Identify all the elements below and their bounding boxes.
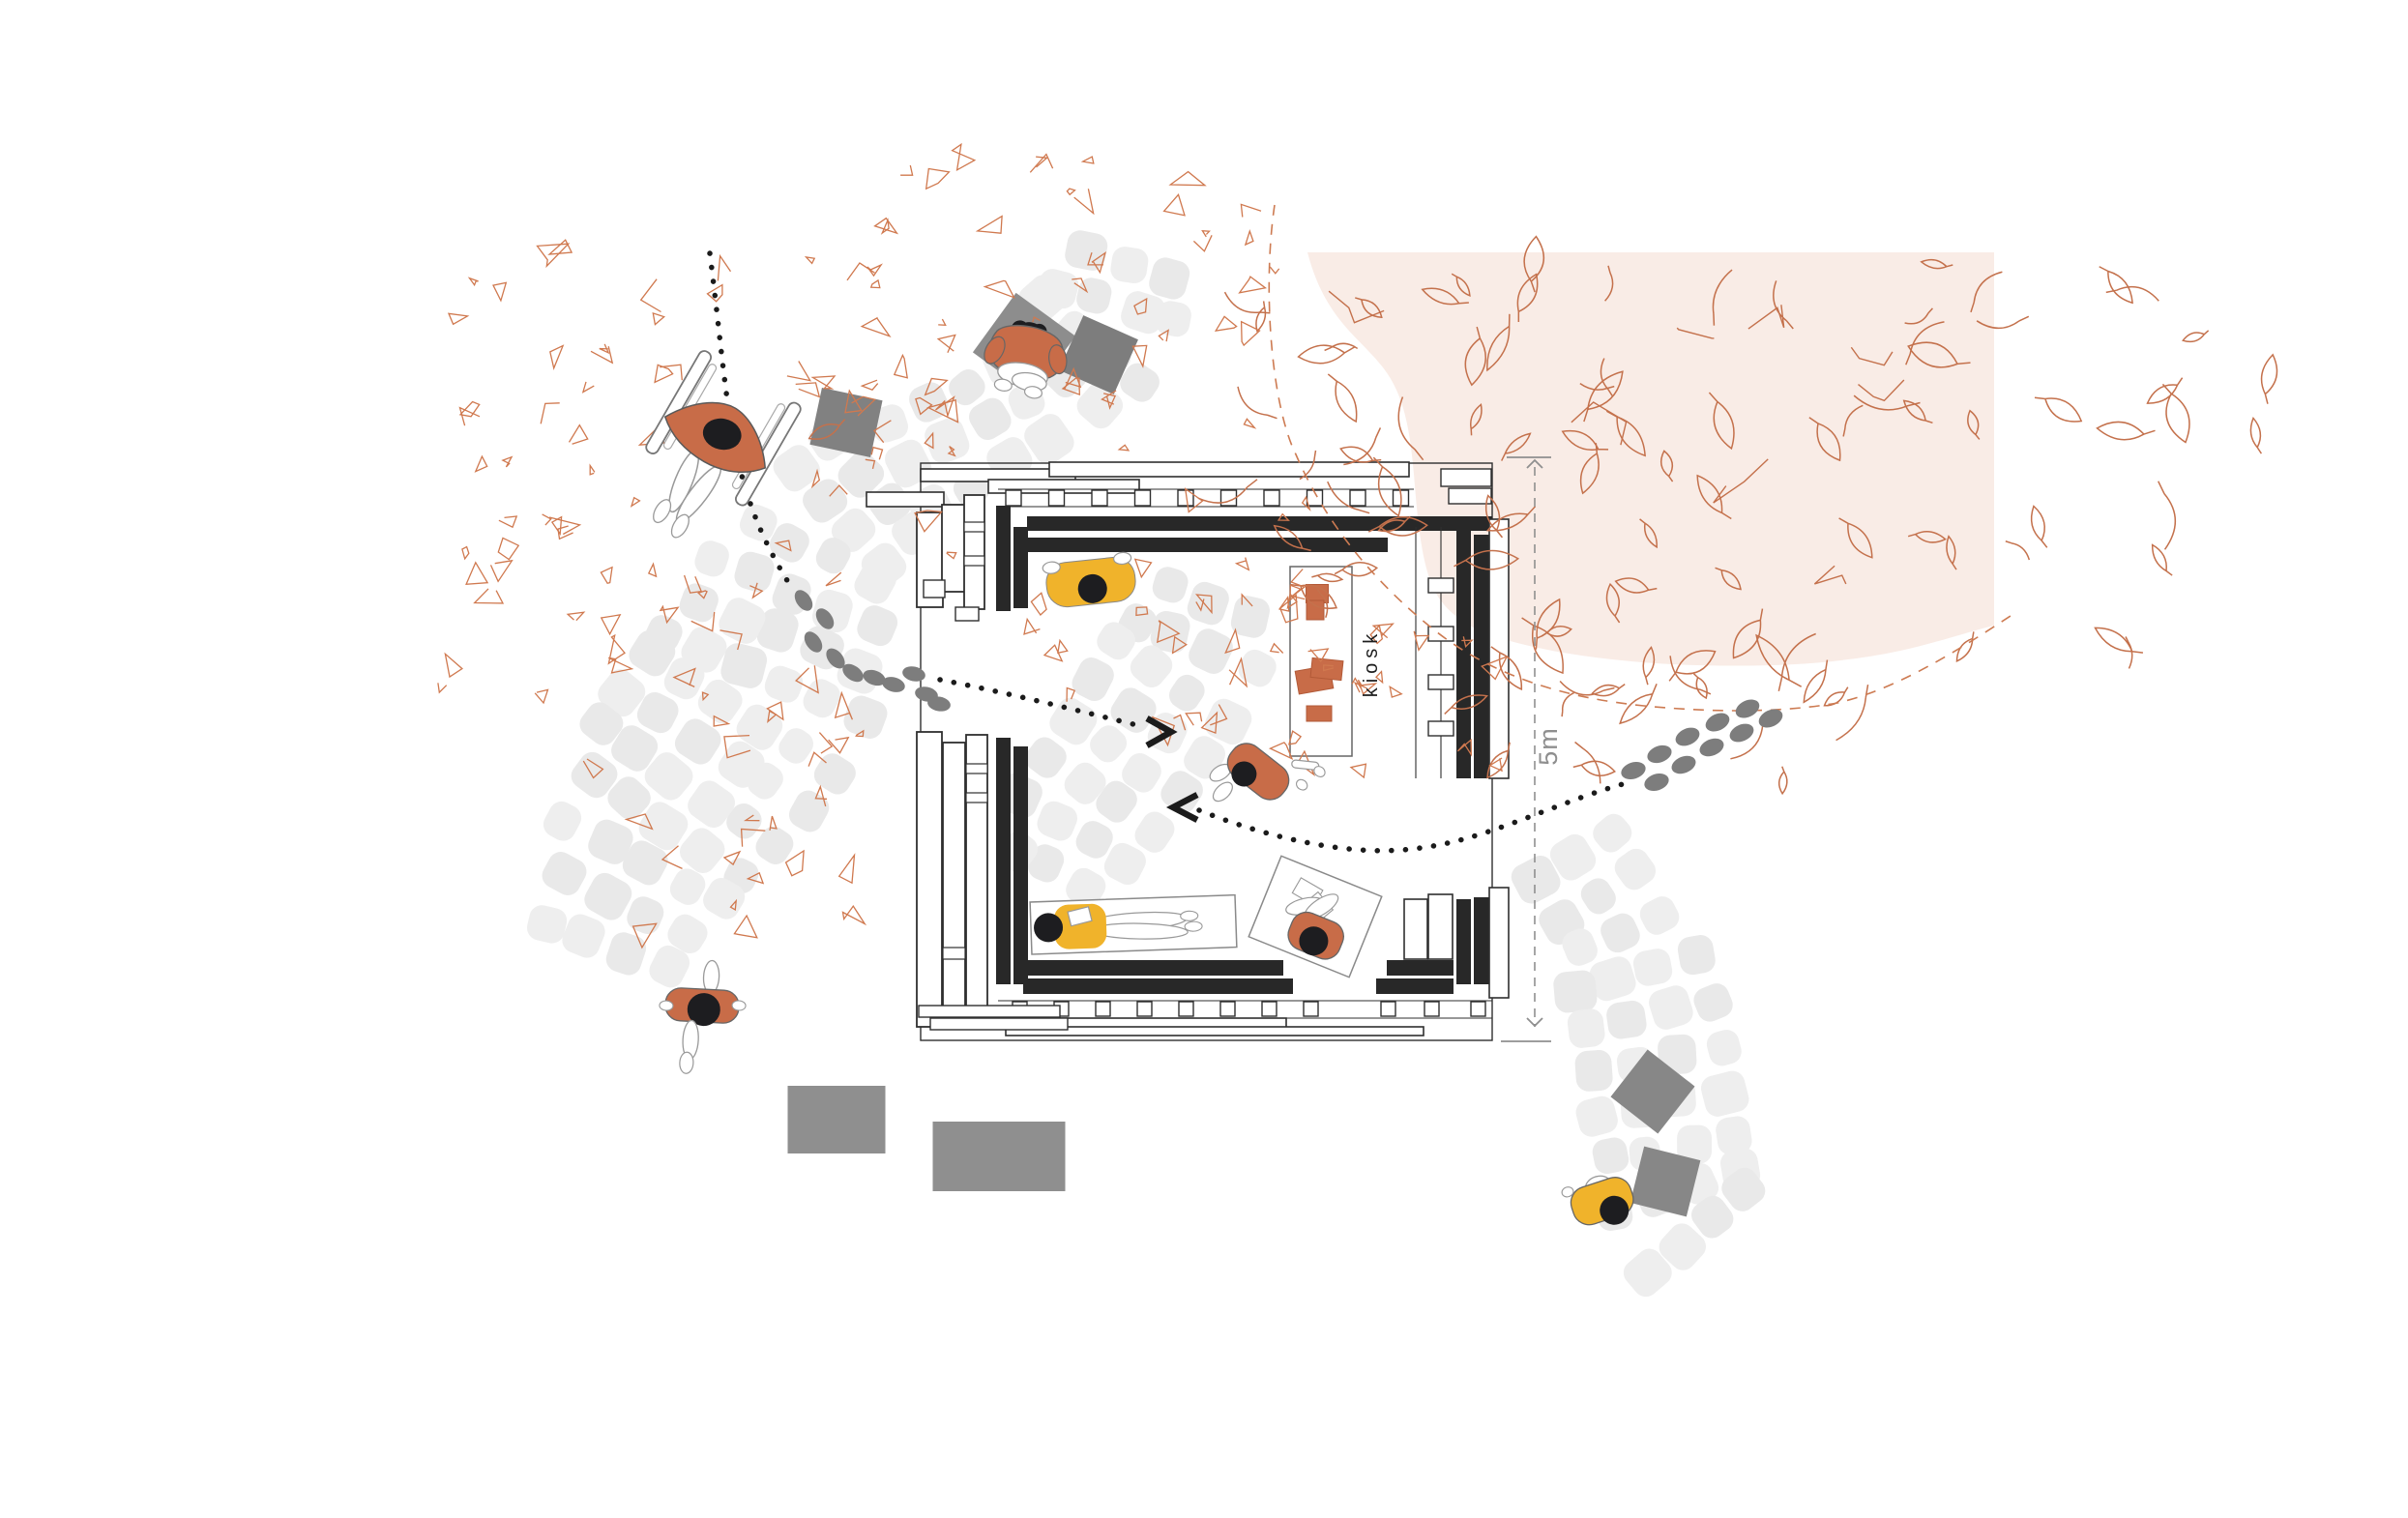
person-standing-visitor bbox=[1042, 551, 1137, 609]
kiosk-label: kiosk bbox=[1361, 629, 1382, 698]
person-reading-at-table bbox=[1248, 856, 1382, 977]
dimension-label: 5m bbox=[1534, 727, 1563, 766]
bench-rect-1 bbox=[788, 1086, 886, 1153]
person-crouching-visitor bbox=[1560, 1168, 1639, 1239]
person-lying-on-bench bbox=[1030, 895, 1237, 954]
site-plan-drawing: kiosk 5m bbox=[0, 0, 2408, 1518]
bench-rect-2 bbox=[933, 1122, 1066, 1191]
site-plan-canvas: kiosk 5m bbox=[0, 0, 2408, 1518]
tree-canopy-area bbox=[1307, 252, 1994, 666]
